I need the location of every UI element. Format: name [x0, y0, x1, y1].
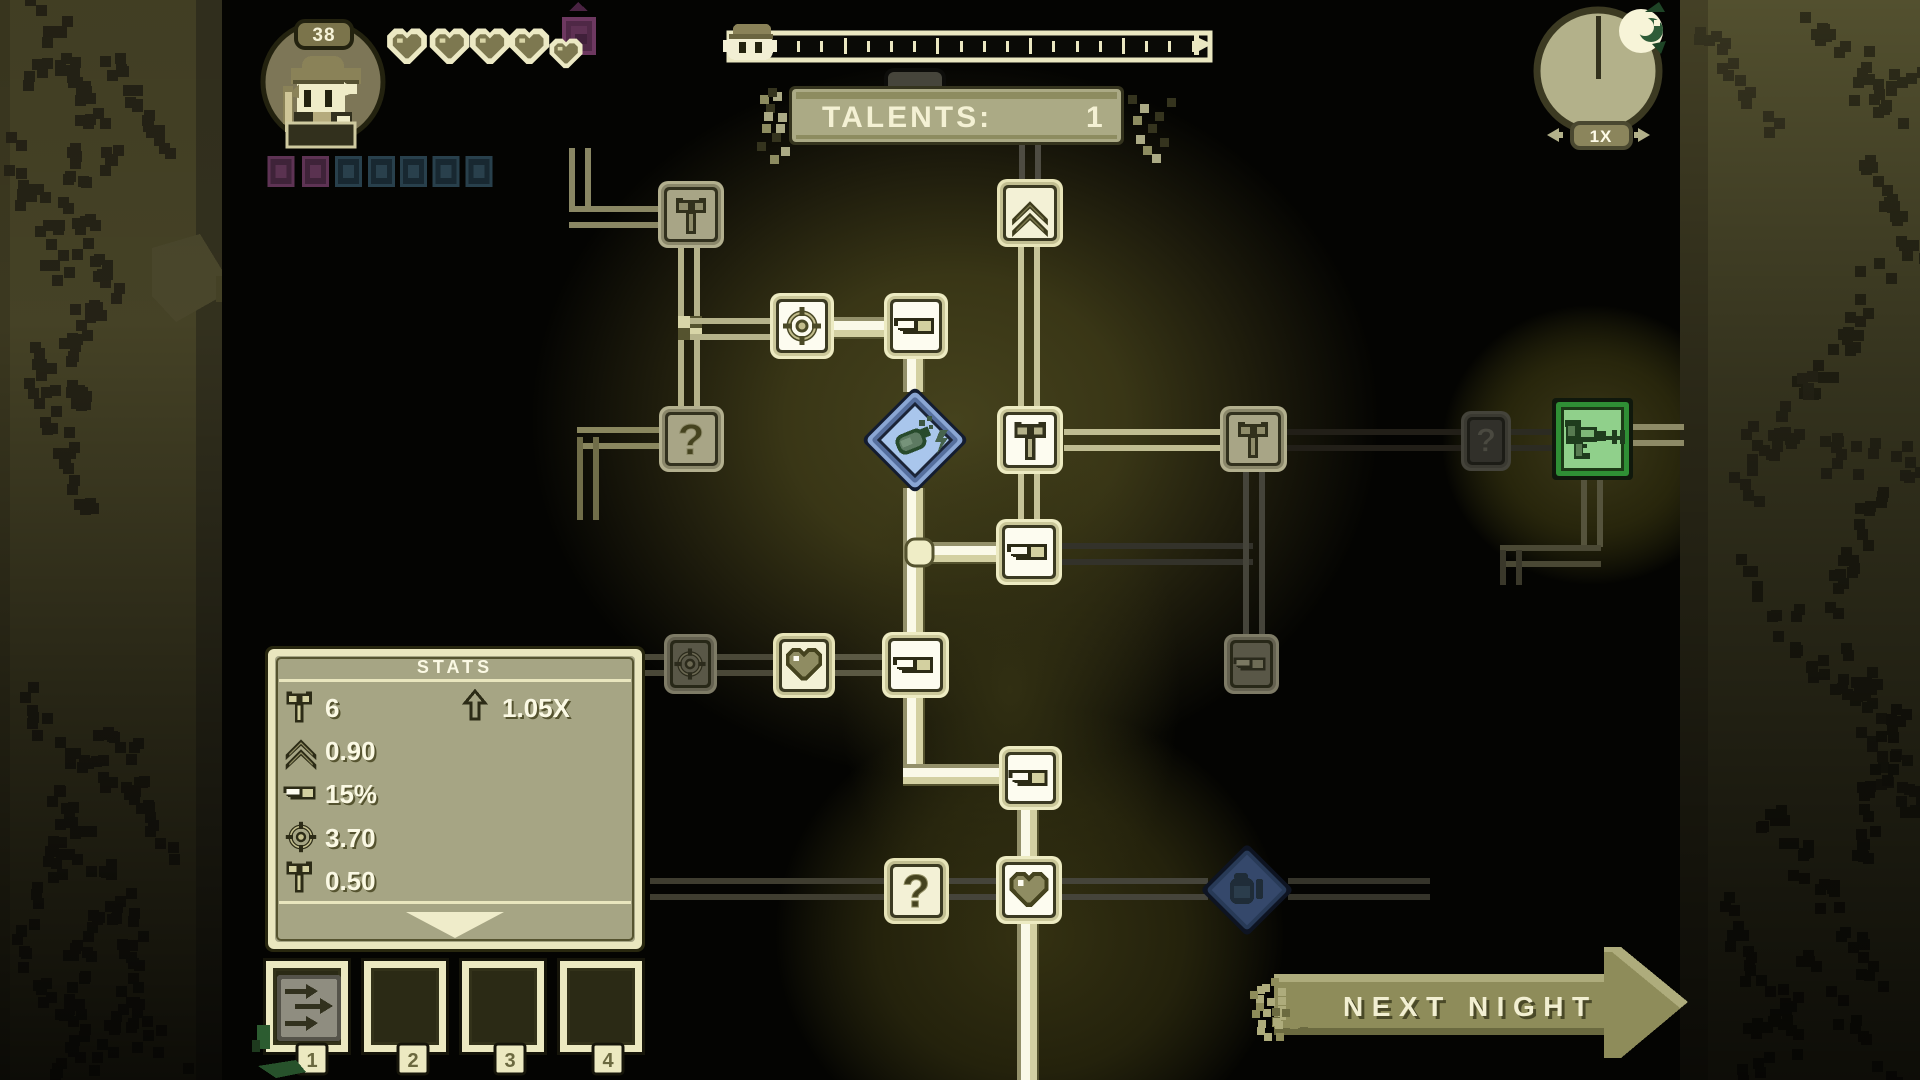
svg-text:1X: 1X [1590, 127, 1613, 146]
svg-text:?: ? [902, 865, 930, 917]
svg-text:38: 38 [312, 25, 335, 46]
svg-text:0.50: 0.50 [325, 866, 376, 896]
svg-text:STATS: STATS [417, 657, 493, 677]
svg-text:4: 4 [602, 1050, 614, 1072]
svg-text:NEXT NIGHT: NEXT NIGHT [1343, 991, 1598, 1022]
svg-text:3: 3 [504, 1050, 515, 1072]
svg-text:1.05X: 1.05X [502, 693, 571, 723]
svg-text:1: 1 [306, 1050, 317, 1072]
svg-text:?: ? [1476, 423, 1496, 460]
svg-text:2: 2 [407, 1050, 418, 1072]
svg-text:6: 6 [325, 693, 339, 723]
svg-text:15%: 15% [325, 779, 377, 809]
svg-text:TALENTS:: TALENTS: [822, 101, 992, 134]
svg-text:0.90: 0.90 [325, 736, 376, 766]
svg-text:1: 1 [1086, 101, 1103, 134]
svg-text:3.70: 3.70 [325, 823, 376, 853]
svg-text:?: ? [678, 416, 705, 465]
